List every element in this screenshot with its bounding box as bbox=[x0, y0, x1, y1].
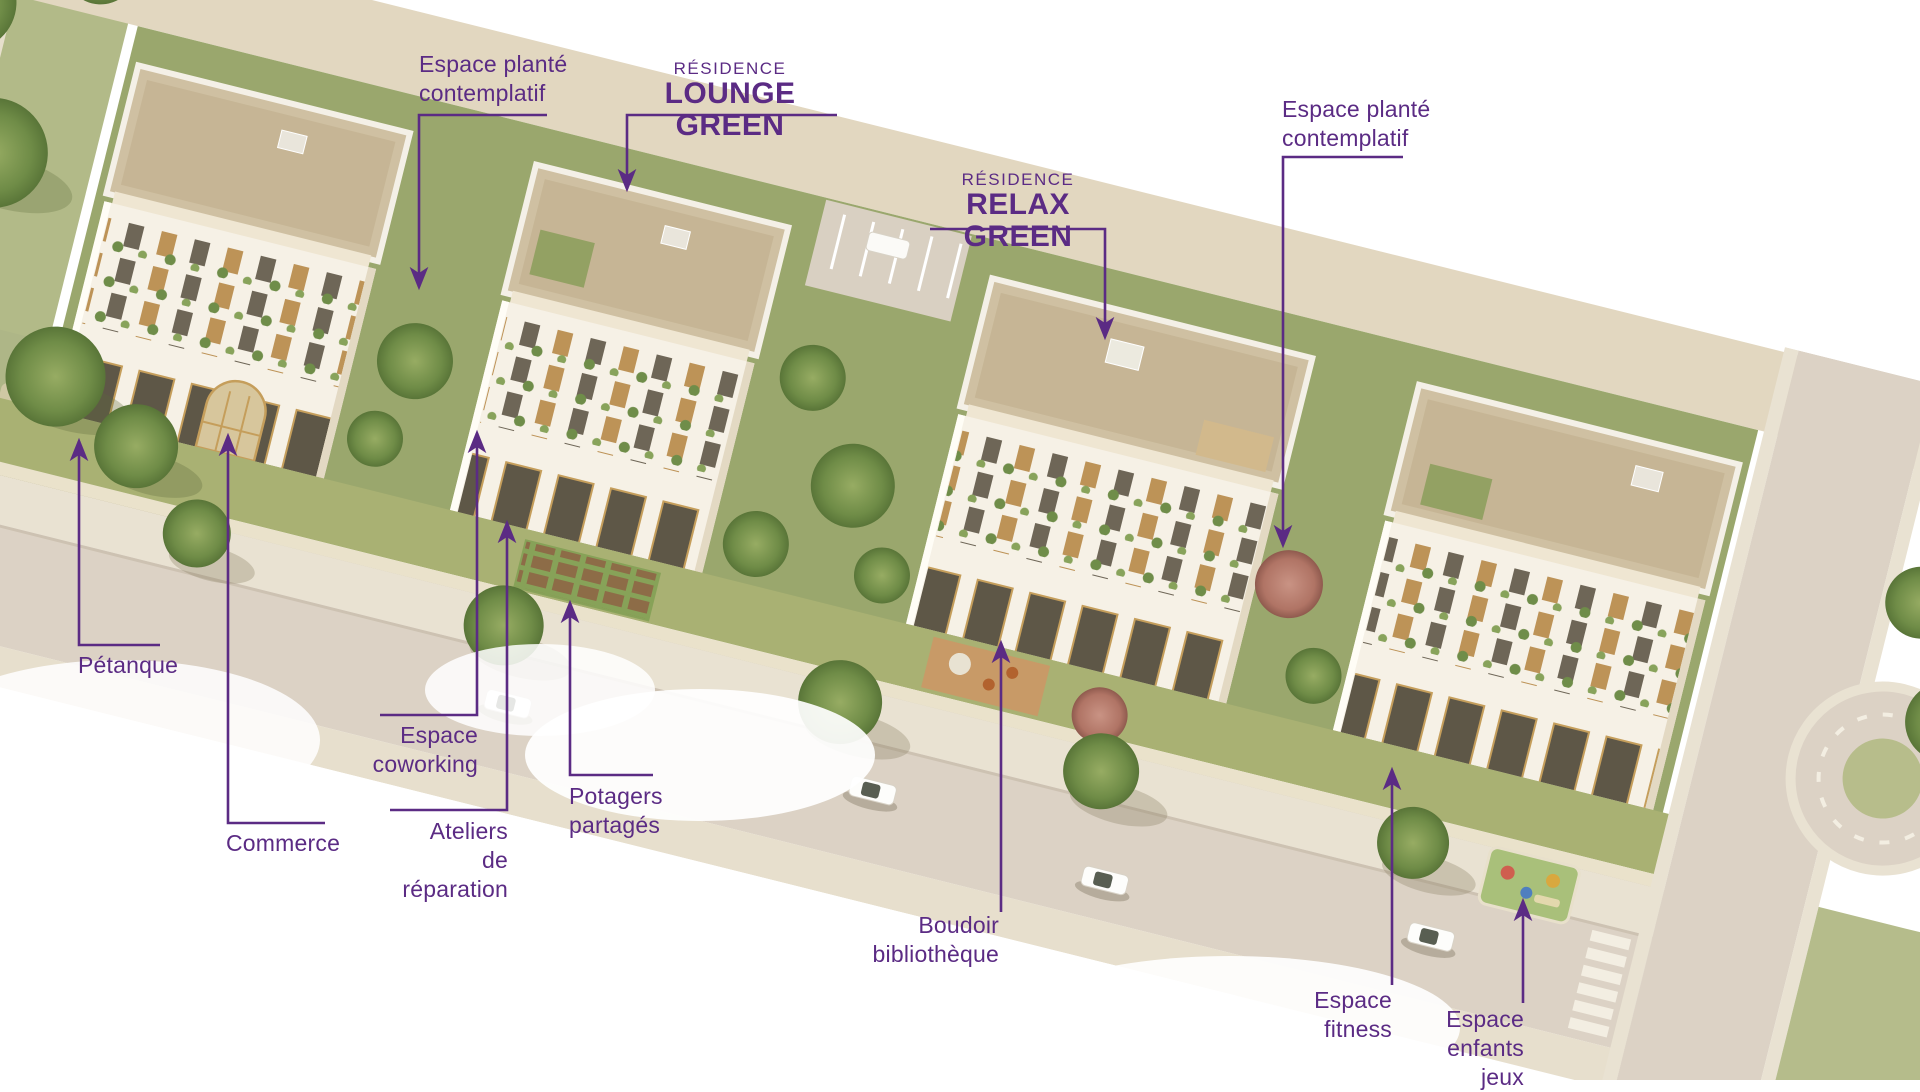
label-espace-coworking: Espace coworking bbox=[350, 721, 478, 779]
label-espace-enfants-jeux: Espace enfants jeux bbox=[1398, 1005, 1524, 1092]
label-boudoir-bibliotheque: Boudoir bibliothèque bbox=[866, 911, 999, 969]
label-potagers-partages: Potagers partagés bbox=[569, 782, 689, 840]
label-espace-plante-left: Espace planté contemplatif bbox=[419, 50, 569, 108]
label-espace-fitness: Espace fitness bbox=[1297, 986, 1392, 1044]
label-commerce: Commerce bbox=[226, 829, 356, 858]
relax-name: RELAX GREEN bbox=[918, 189, 1118, 253]
lounge-name: LOUNGE GREEN bbox=[620, 78, 840, 142]
residence-lounge-green-title: RÉSIDENCE LOUNGE GREEN bbox=[620, 59, 840, 142]
relax-kicker: RÉSIDENCE bbox=[918, 170, 1118, 189]
lounge-kicker: RÉSIDENCE bbox=[620, 59, 840, 78]
label-ateliers-reparation: Ateliers de réparation bbox=[372, 817, 508, 904]
label-petanque: Pétanque bbox=[78, 651, 198, 680]
residence-relax-green-title: RÉSIDENCE RELAX GREEN bbox=[918, 170, 1118, 253]
aerial-masterplan-rendering: RÉSIDENCE LOUNGE GREEN RÉSIDENCE RELAX G… bbox=[0, 0, 1920, 1080]
label-espace-plante-right: Espace planté contemplatif bbox=[1282, 95, 1432, 153]
